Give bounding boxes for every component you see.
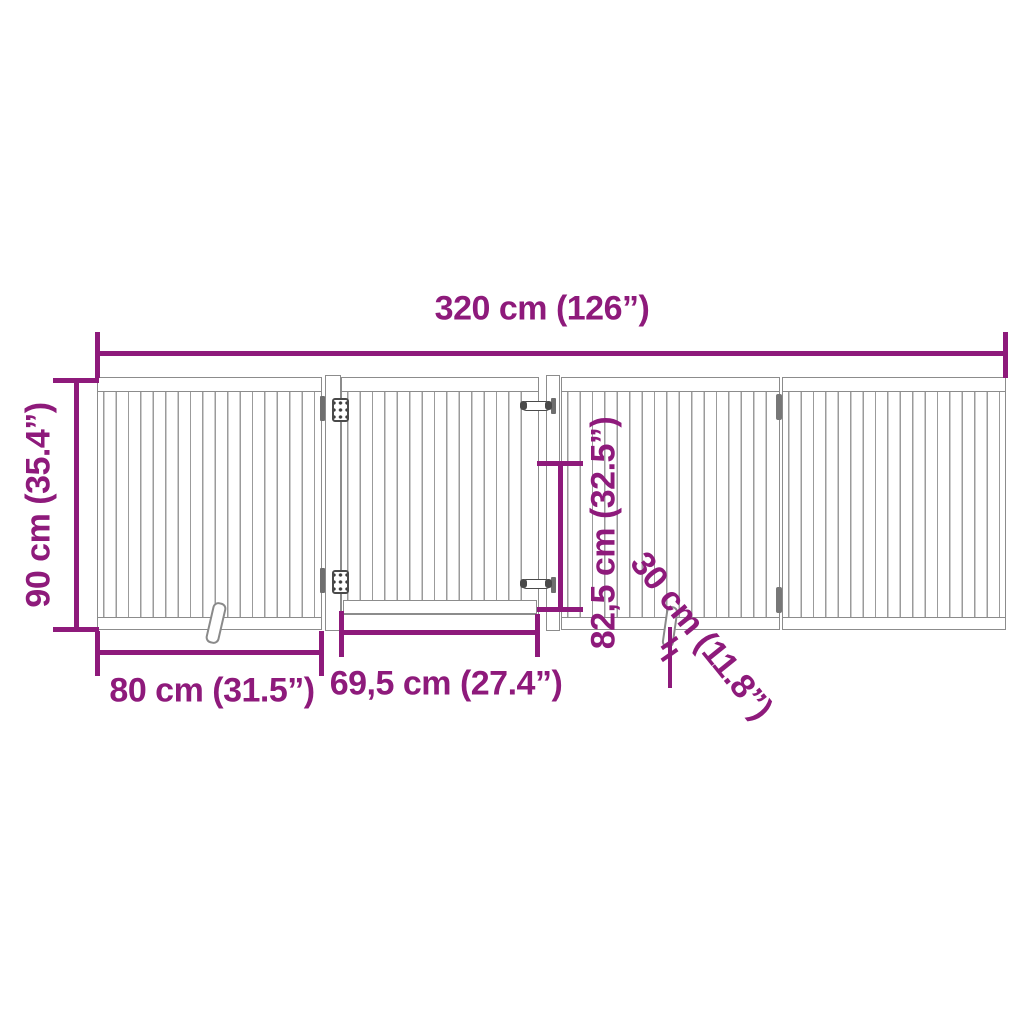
door-width-end-tick-right — [535, 614, 540, 657]
panel-4-top-rail — [783, 378, 1005, 392]
dimension-diagram: 320 cm (126”) 90 cm (35.4”) 80 cm (31.5”… — [0, 0, 1024, 1024]
panel-width-dimension-line — [97, 650, 322, 655]
hinge-edge-shadow — [320, 568, 325, 593]
door-height-end-tick-top — [537, 461, 583, 466]
door-height-dimension-line — [558, 463, 563, 612]
total-height-dimension-line — [74, 378, 79, 631]
total-height-label: 90 cm (35.4”) — [20, 402, 59, 607]
door-width-end-tick-left — [339, 611, 344, 657]
door-hinge-top-icon — [332, 398, 349, 422]
panel-3-top-rail — [562, 378, 779, 392]
total-height-end-tick-top — [53, 378, 99, 383]
door-slats — [347, 392, 533, 600]
panel-1-slats — [103, 392, 316, 617]
panel-4-slats — [788, 392, 1000, 617]
door-latch-pin-bottom-icon — [521, 579, 551, 589]
panel-fold-hinge-top-icon — [776, 394, 782, 420]
total-height-end-tick-bottom — [53, 627, 99, 632]
panel-width-label: 80 cm (31.5”) — [109, 672, 314, 711]
gate-panel-1 — [97, 377, 322, 630]
door-width-label: 69,5 cm (27.4”) — [330, 665, 563, 704]
door-hinge-bottom-icon — [332, 570, 349, 594]
door-bottom-rail — [343, 600, 537, 614]
door-height-end-tick-bottom — [537, 607, 583, 612]
panel-width-end-tick-right — [319, 631, 324, 676]
door-top-rail — [342, 378, 538, 392]
panel-1-top-rail — [98, 378, 321, 392]
panel-width-end-tick-left — [95, 631, 100, 676]
panel-4-bottom-rail — [783, 617, 1005, 629]
door-latch-pin-top-icon — [521, 401, 551, 411]
door-height-label: 82,5 cm (32.5”) — [585, 417, 624, 650]
hinge-edge-shadow — [320, 396, 325, 421]
total-width-end-tick-left — [95, 332, 100, 378]
gate-door-panel — [341, 377, 539, 615]
total-width-dimension-line — [97, 351, 1006, 356]
total-width-end-tick-right — [1003, 332, 1008, 378]
gate-panel-4 — [782, 377, 1006, 630]
total-width-label: 320 cm (126”) — [435, 290, 650, 329]
panel-fold-hinge-bottom-icon — [776, 587, 782, 613]
door-width-dimension-line — [341, 630, 538, 635]
